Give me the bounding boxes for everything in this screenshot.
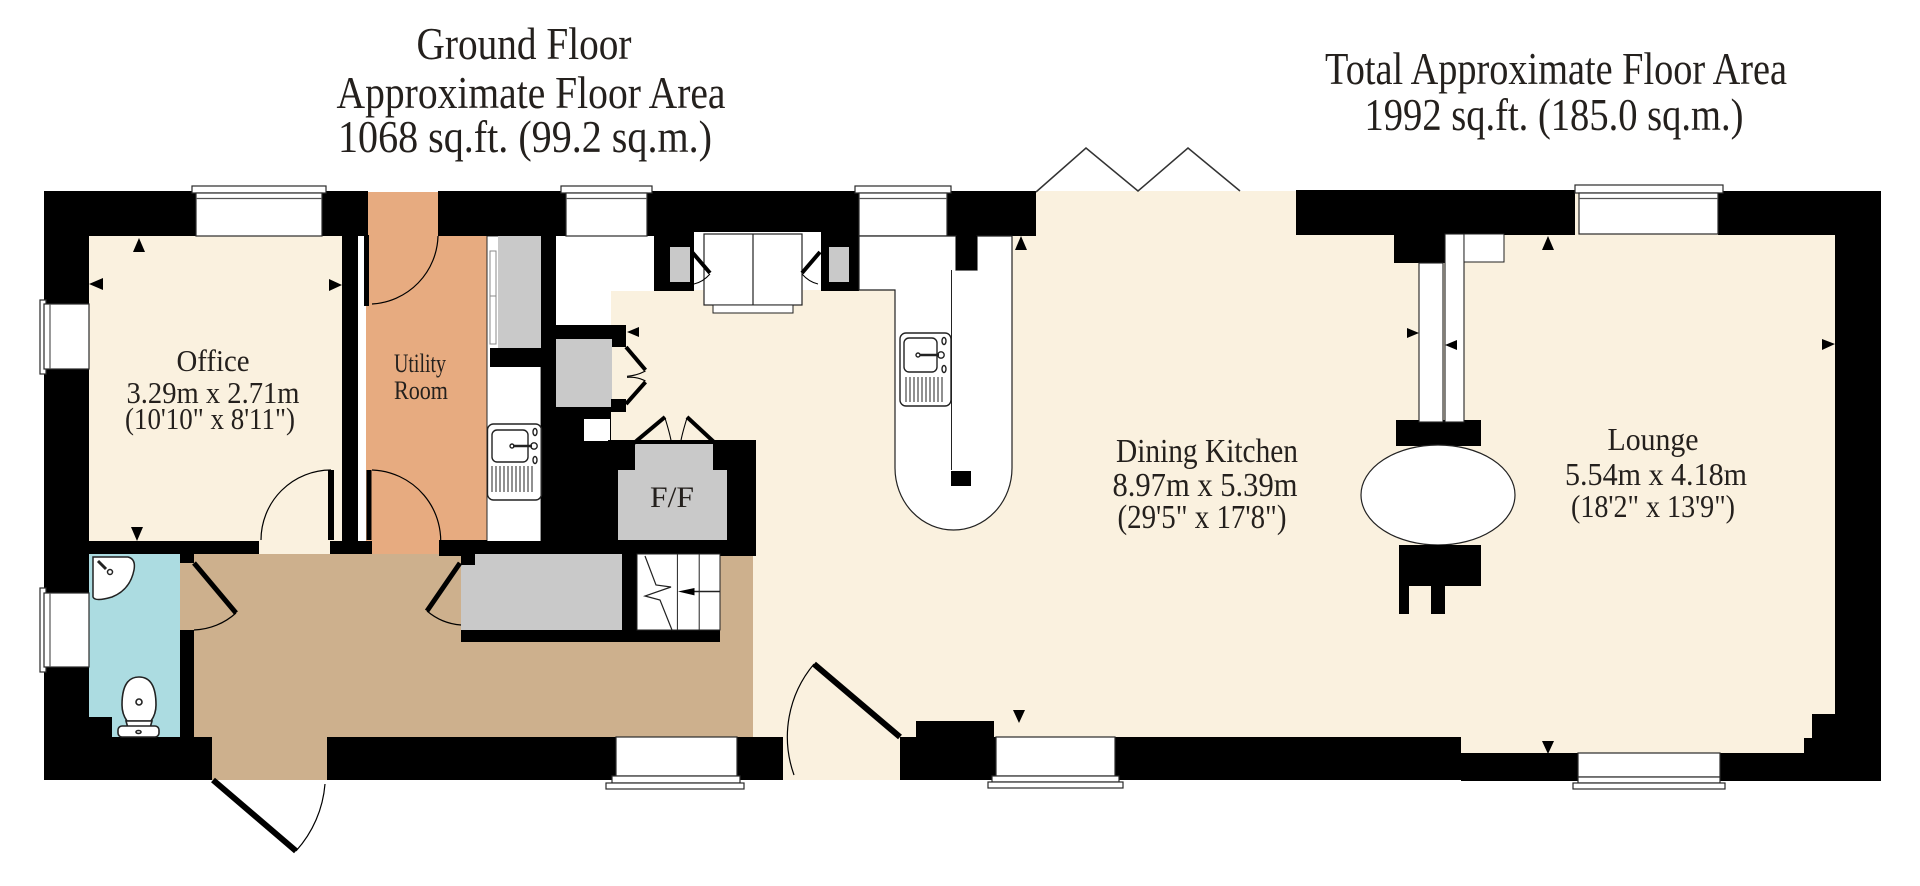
svg-text:(29'5" x 17'8"): (29'5" x 17'8") [1118,499,1287,536]
svg-text:Ground Floor: Ground Floor [417,19,632,69]
svg-text:1992 sq.ft. (185.0 sq.m.): 1992 sq.ft. (185.0 sq.m.) [1365,90,1744,140]
svg-text:1068 sq.ft. (99.2 sq.m.): 1068 sq.ft. (99.2 sq.m.) [338,112,712,162]
svg-text:F/F: F/F [650,481,694,514]
svg-text:(18'2" x 13'9"): (18'2" x 13'9") [1571,488,1735,524]
svg-text:Lounge: Lounge [1608,421,1699,457]
svg-text:Dining Kitchen: Dining Kitchen [1116,433,1298,470]
svg-text:Room: Room [394,376,448,405]
svg-text:(10'10" x 8'11"): (10'10" x 8'11") [125,401,295,436]
svg-text:Approximate Floor Area: Approximate Floor Area [337,68,726,118]
svg-text:Total Approximate Floor Area: Total Approximate Floor Area [1325,44,1787,94]
svg-text:5.54m x 4.18m: 5.54m x 4.18m [1565,456,1747,492]
svg-text:Office: Office [177,343,250,378]
svg-text:Utility: Utility [394,349,446,378]
